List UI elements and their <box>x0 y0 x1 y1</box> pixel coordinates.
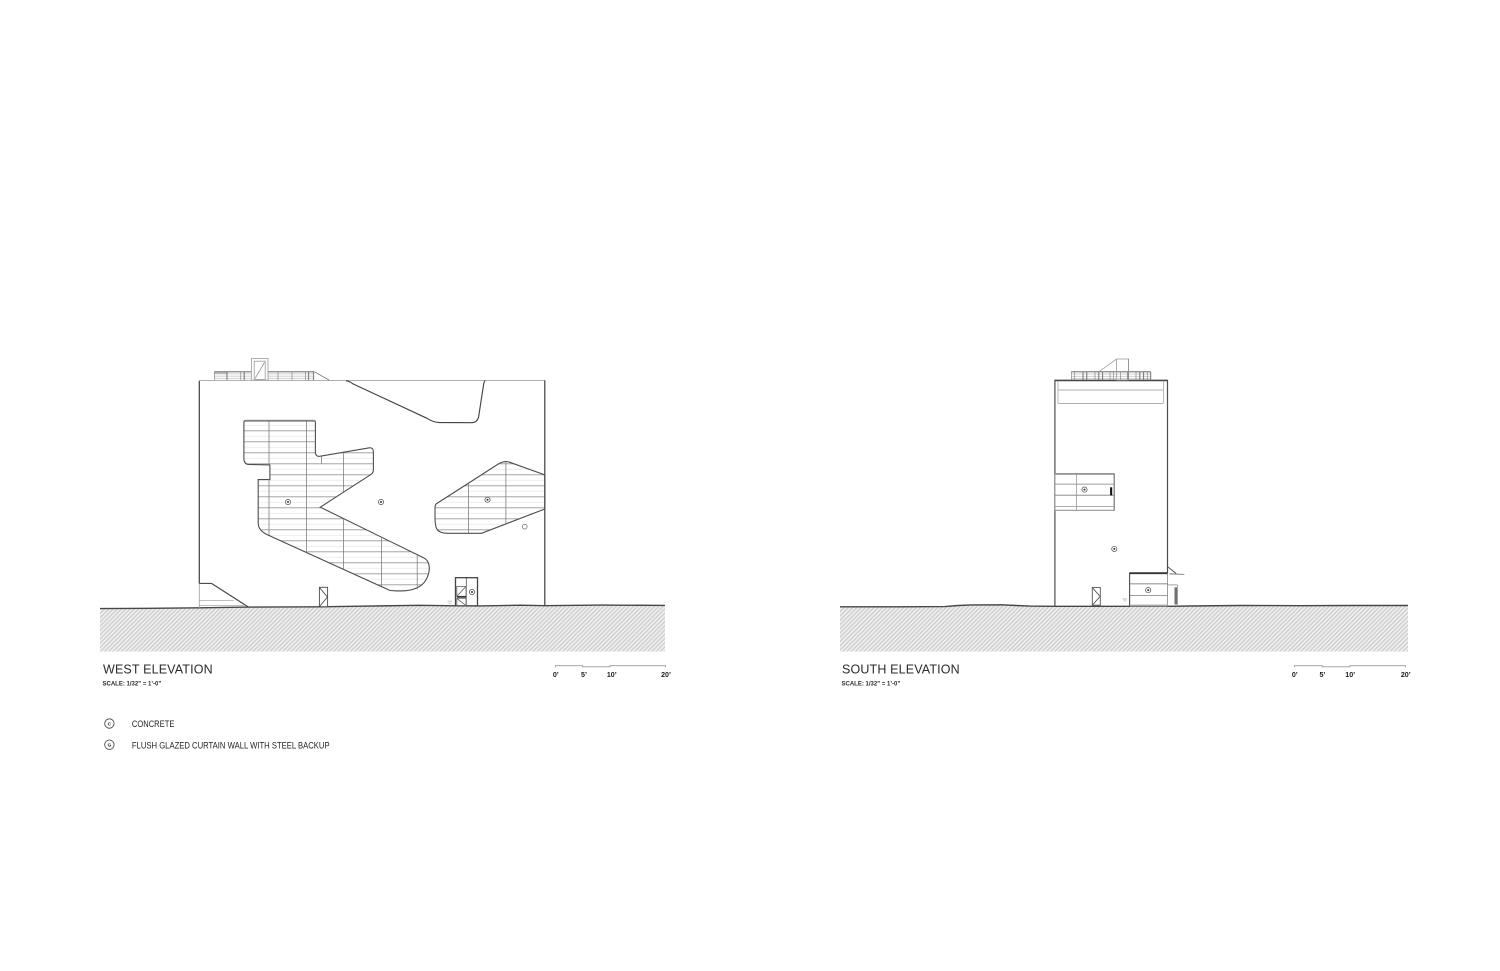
svg-text:20’: 20’ <box>661 671 671 679</box>
svg-text:SCALE: 1/32” = 1’-0”: SCALE: 1/32” = 1’-0” <box>842 682 901 688</box>
svg-text:CONCRETE: CONCRETE <box>132 719 175 729</box>
svg-text:SOUTH ELEVATION: SOUTH ELEVATION <box>842 663 960 677</box>
svg-text:0’: 0’ <box>1292 671 1298 679</box>
svg-text:C: C <box>108 721 112 727</box>
svg-text:SCALE: 1/32” = 1’-0”: SCALE: 1/32” = 1’-0” <box>103 682 162 688</box>
svg-text:5’: 5’ <box>1319 671 1325 679</box>
svg-text:0’: 0’ <box>553 671 559 679</box>
svg-text:WEST ELEVATION: WEST ELEVATION <box>103 663 213 677</box>
svg-text:G: G <box>108 743 112 749</box>
svg-text:10’: 10’ <box>1345 671 1355 679</box>
svg-text:20’: 20’ <box>1401 671 1411 679</box>
svg-text:FLUSH GLAZED CURTAIN WALL WITH: FLUSH GLAZED CURTAIN WALL WITH STEEL BAC… <box>132 741 330 751</box>
svg-text:5’: 5’ <box>581 671 587 679</box>
svg-text:10’: 10’ <box>607 671 617 679</box>
